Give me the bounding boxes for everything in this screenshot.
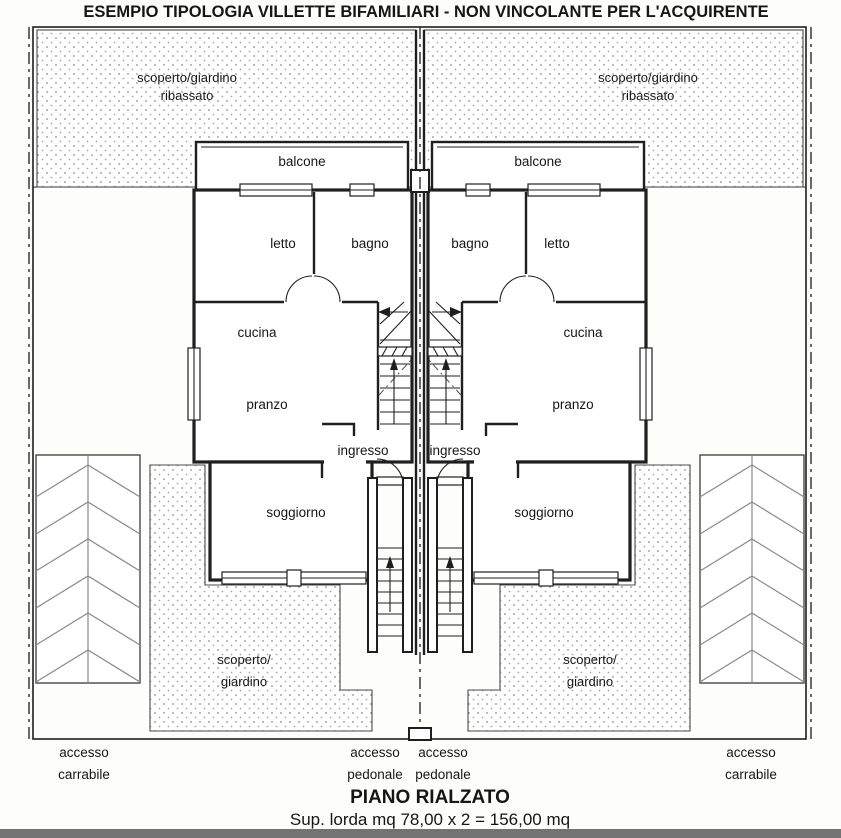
entry-walkway [368,478,412,652]
entry-door [377,477,403,485]
walkway-up-arrow [386,556,394,568]
label-sunken-garden-right-1: scoperto/giardino [598,70,698,85]
dwelling-unit-mirrored [424,27,811,739]
dwelling-unit [29,27,416,739]
label-living-right: soggiorno [514,505,573,520]
label-ped-access-right-2: pedonale [415,767,471,782]
label-drive-access-left-2: carrabile [58,767,110,782]
page-title: ESEMPIO TIPOLOGIA VILLETTE BIFAMILIARI -… [83,3,768,21]
label-bedroom-right: letto [544,236,570,251]
label-drive-access-left-1: accesso [59,745,109,760]
scan-artifact-bar [0,829,841,838]
area-note: Sup. lorda mq 78,00 x 2 = 156,00 mq [290,810,570,829]
label-garden-right-2: giardino [567,674,613,689]
label-drive-access-right-2: carrabile [725,767,777,782]
label-kitchen-left: cucina [237,325,277,340]
floor-plan-drawing: ESEMPIO TIPOLOGIA VILLETTE BIFAMILIARI -… [0,0,841,838]
label-garden-right-1: scoperto/ [563,652,617,667]
label-bathroom-right: bagno [451,236,489,251]
label-living-left: soggiorno [266,505,325,520]
label-bedroom-left: letto [270,236,296,251]
label-dining-left: pranzo [246,397,287,412]
label-sunken-garden-right-2: ribassato [622,88,675,103]
label-entry-right: ingresso [429,443,480,458]
label-sunken-garden-left-2: ribassato [161,88,214,103]
label-balcony-left: balcone [278,154,325,169]
label-ped-access-left-2: pedonale [347,767,403,782]
label-ped-access-left-1: accesso [350,745,400,760]
main-block-walls [194,190,412,462]
label-bathroom-left: bagno [351,236,389,251]
label-balcony-right: balcone [514,154,561,169]
floor-plan-page: ESEMPIO TIPOLOGIA VILLETTE BIFAMILIARI -… [0,0,841,838]
living-block-walls [210,462,372,580]
gate-marker [409,728,431,740]
floor-title: PIANO RIALZATO [350,787,510,808]
label-entry-left: ingresso [337,443,388,458]
label-dining-right: pranzo [552,397,593,412]
label-ped-access-right-1: accesso [418,745,468,760]
label-garden-left-2: giardino [221,674,267,689]
label-sunken-garden-left-1: scoperto/giardino [137,70,237,85]
label-drive-access-right-1: accesso [726,745,776,760]
living-window-mullion [287,570,301,586]
label-kitchen-right: cucina [563,325,603,340]
label-garden-left-1: scoperto/ [217,652,271,667]
